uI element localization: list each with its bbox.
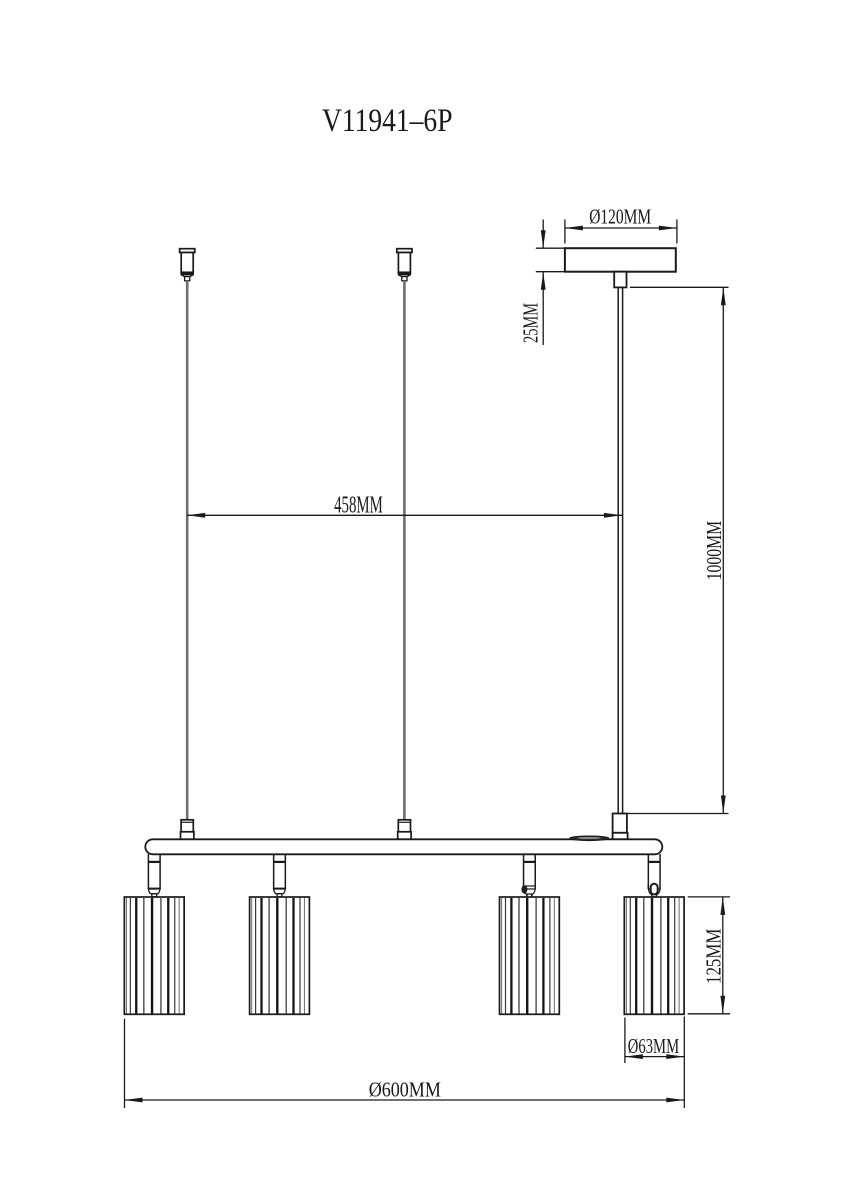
svg-text:1000MM: 1000MM bbox=[702, 521, 726, 581]
svg-text:Ø600MM: Ø600MM bbox=[369, 1078, 441, 1102]
svg-text:25MM: 25MM bbox=[518, 303, 542, 343]
svg-text:125MM: 125MM bbox=[701, 928, 725, 984]
svg-text:458MM: 458MM bbox=[334, 492, 383, 518]
svg-text:Ø120MM: Ø120MM bbox=[589, 204, 651, 228]
svg-text:Ø63MM: Ø63MM bbox=[628, 1034, 680, 1058]
svg-text:V11941–6P: V11941–6P bbox=[322, 103, 453, 139]
